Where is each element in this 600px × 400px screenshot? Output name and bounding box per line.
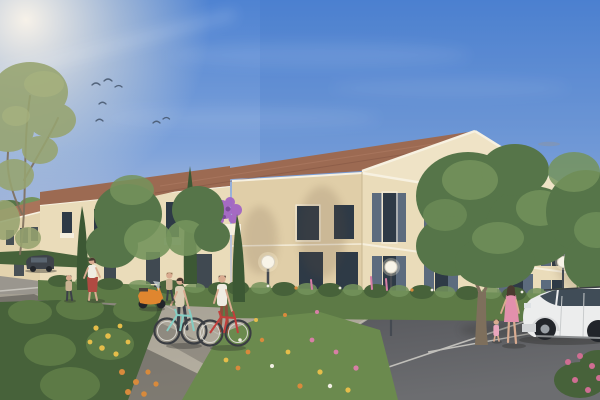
render-canvas <box>0 0 600 400</box>
lamp-globe <box>385 261 397 273</box>
rider-torso <box>175 286 185 307</box>
dark-cloud-wisp <box>538 142 560 146</box>
red-skirt <box>87 277 98 292</box>
scooter-seat <box>139 288 148 292</box>
headlight <box>524 303 531 308</box>
rider-torso <box>217 284 227 306</box>
upper-window <box>372 192 406 243</box>
car-distant <box>25 255 57 273</box>
architectural-render: Architectural 3D rendering: two-storey c… <box>0 0 600 400</box>
lamp-globe <box>262 256 275 269</box>
